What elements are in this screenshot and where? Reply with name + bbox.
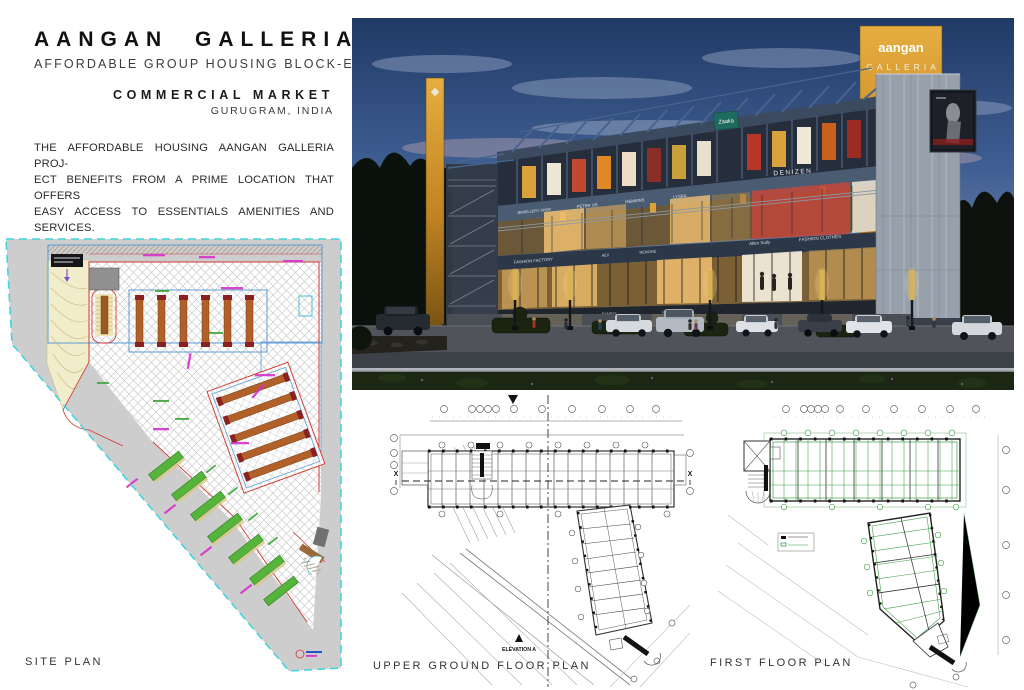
billboard <box>930 90 976 152</box>
shop-block-angled <box>569 505 652 635</box>
pylon-sign-line1: aangan <box>878 40 924 55</box>
shop-block-angled <box>861 513 947 643</box>
shop-block-top <box>428 442 674 517</box>
first-floor-plan-label: FIRST FLOOR PLAN <box>710 657 853 669</box>
pylon-sign-line2: GALLERIA <box>866 62 940 72</box>
road <box>352 352 1014 370</box>
plan-legend <box>778 533 814 551</box>
market-title: COMMERCIAL MARKET <box>34 88 334 102</box>
elevation-arrow-top <box>508 395 518 404</box>
kerb-line <box>352 368 1014 371</box>
svg-text:AEX: AEX <box>602 253 610 258</box>
site-plan-panel: SITE PLAN <box>3 232 353 684</box>
road-strip <box>47 245 323 254</box>
building-rendering: aangan GALLERIA <box>352 18 1014 390</box>
site-plan-drawing <box>3 232 353 684</box>
grid-bubbles <box>391 406 694 683</box>
upper-ground-plan-label: UPPER GROUND FLOOR PLAN <box>373 660 591 672</box>
svg-text:X: X <box>688 471 693 478</box>
core-block <box>89 268 119 290</box>
upper-ground-plan-drawing: X X <box>372 393 702 690</box>
bottom-stair <box>609 637 660 665</box>
location-text: GURUGRAM, INDIA <box>34 105 334 117</box>
page-subtitle: AFFORDABLE GROUP HOUSING BLOCK-E <box>34 57 334 71</box>
left-gold-pylon <box>426 78 444 326</box>
red-store <box>752 182 850 239</box>
svg-text:ELEVATION A: ELEVATION A <box>502 647 536 653</box>
page-title: AANGAN GALLERIA <box>34 28 334 52</box>
first-floor-plan-drawing <box>708 395 1024 690</box>
shop-block-top <box>764 430 966 510</box>
elevation-marker: ELEVATION A <box>502 634 536 653</box>
foreground-grass <box>352 372 1014 390</box>
first-floor-plan-panel: FIRST FLOOR PLAN <box>708 395 1024 690</box>
rendering-panel: aangan GALLERIA <box>352 18 1014 390</box>
upper-ground-plan-panel: X X <box>372 393 702 690</box>
site-plan-label: SITE PLAN <box>25 656 103 668</box>
stair-core <box>95 294 113 336</box>
svg-text:X: X <box>394 471 399 478</box>
presentation-board: AANGAN GALLERIA AFFORDABLE GROUP HOUSING… <box>0 0 1024 690</box>
